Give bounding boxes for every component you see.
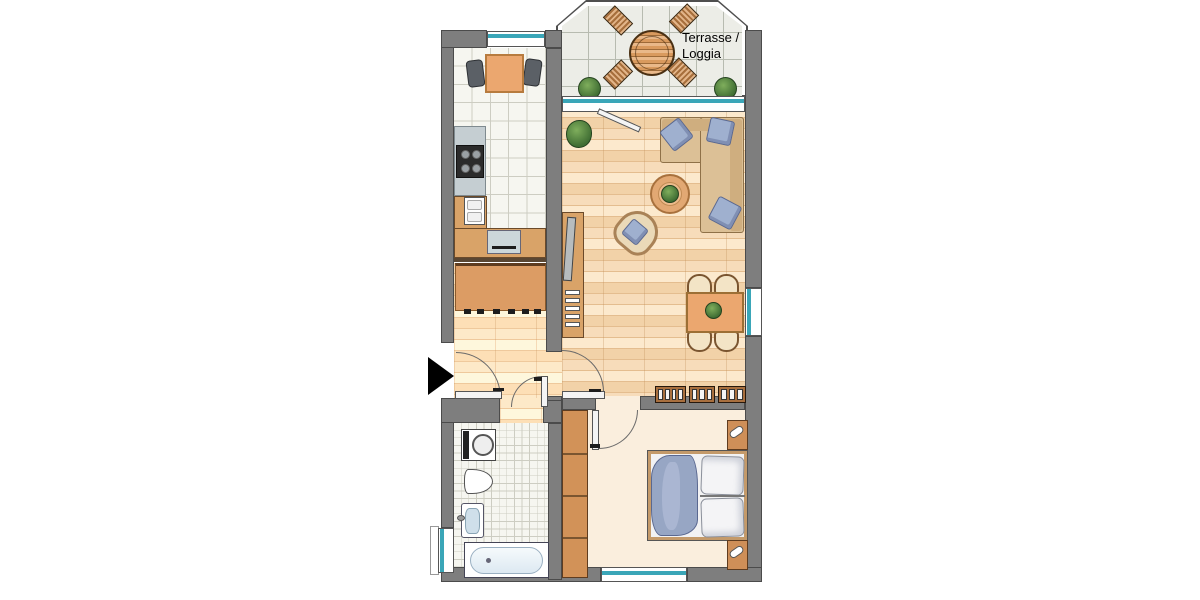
- sink-faucet-icon: [457, 515, 465, 521]
- entrance-door-handle: [493, 388, 504, 391]
- balcony-glass-front-glass: [563, 99, 744, 103]
- kitchen-window-glass: [488, 34, 544, 38]
- wardrobe-hook: [522, 309, 529, 314]
- tv-shelf-slat: [565, 306, 580, 311]
- living-door-handle: [589, 389, 601, 392]
- wall-hall-bath-left: [441, 398, 500, 423]
- kitchen-cooktop: [456, 145, 484, 178]
- dishwasher-handle: [492, 246, 516, 249]
- terrace-label-line1: Terrasse /: [682, 30, 739, 45]
- entrance-arrow-icon: [428, 357, 454, 395]
- hall-wardrobe: [455, 263, 546, 311]
- kitchen-table: [485, 54, 524, 93]
- wall-kitchen-living: [546, 48, 562, 352]
- burner-icon: [472, 164, 481, 173]
- burner-icon: [461, 164, 470, 173]
- wall-left-upper: [441, 30, 454, 343]
- terrace-table-ring: [635, 36, 669, 70]
- bed-pillow: [700, 455, 744, 495]
- sink-basin: [467, 212, 482, 222]
- sideboard-books: [718, 386, 746, 403]
- bathtub: [464, 542, 549, 578]
- tv-shelf-slat: [565, 290, 580, 295]
- bed-blanket: [651, 455, 698, 536]
- living-door-leaf: [562, 391, 605, 399]
- tv-shelf-slat: [565, 314, 580, 319]
- tv-shelf-slat: [565, 298, 580, 303]
- sink-basin: [467, 200, 482, 210]
- sink-basin: [465, 508, 480, 534]
- wardrobe-divider: [563, 453, 587, 455]
- wall-top-left: [441, 30, 487, 48]
- sofa-pillow: [706, 117, 736, 147]
- burner-icon: [472, 150, 481, 159]
- bed-pillow: [700, 497, 744, 537]
- washing-machine-panel: [463, 431, 469, 459]
- kitchen-dishwasher: [487, 230, 521, 254]
- tv-shelf-slat: [565, 322, 580, 327]
- terrace-label-line2: Loggia: [682, 46, 721, 61]
- bathroom-door-leaf: [541, 376, 548, 407]
- burner-icon: [461, 150, 470, 159]
- wardrobe-divider: [563, 537, 587, 539]
- bedroom-door-handle: [590, 444, 600, 448]
- wardrobe-hook: [477, 309, 484, 314]
- blanket-fold: [662, 462, 680, 530]
- wall-bottom-right: [687, 567, 762, 582]
- floor-plan: Terrasse / Loggia: [0, 0, 1200, 600]
- wardrobe-hook: [534, 309, 541, 314]
- sideboard-books: [689, 386, 715, 403]
- living-room-window-glass: [747, 289, 751, 335]
- bathroom-sink: [461, 503, 484, 538]
- entrance-door-leaf: [455, 391, 502, 399]
- wardrobe-hook: [508, 309, 515, 314]
- bedroom-window-glass: [602, 571, 686, 575]
- kitchen-chair-left: [465, 59, 485, 88]
- bathtub-basin: [470, 547, 543, 574]
- dining-table-plant-icon: [705, 302, 722, 319]
- washing-machine-door-icon: [472, 434, 494, 456]
- wardrobe-hook: [464, 309, 471, 314]
- bathroom-window-glass: [440, 529, 444, 572]
- wardrobe-hook: [493, 309, 500, 314]
- living-plant-icon: [566, 120, 592, 148]
- wall-top-right: [545, 30, 562, 48]
- bathtub-drain-icon: [486, 558, 491, 563]
- bedroom-wardrobe: [562, 410, 588, 578]
- wardrobe-divider: [563, 495, 587, 497]
- wall-bath-bedroom: [548, 423, 562, 580]
- kitchen-sink: [464, 197, 485, 225]
- washing-machine: [461, 429, 496, 461]
- bed-center-line: [700, 495, 745, 497]
- sideboard-books: [655, 386, 686, 403]
- terrace: Terrasse / Loggia: [556, 0, 748, 97]
- bathroom-door-handle: [534, 377, 542, 381]
- wall-right-upper: [745, 30, 762, 288]
- coffee-table-plant-icon: [661, 185, 679, 203]
- terrace-label: Terrasse / Loggia: [682, 30, 739, 62]
